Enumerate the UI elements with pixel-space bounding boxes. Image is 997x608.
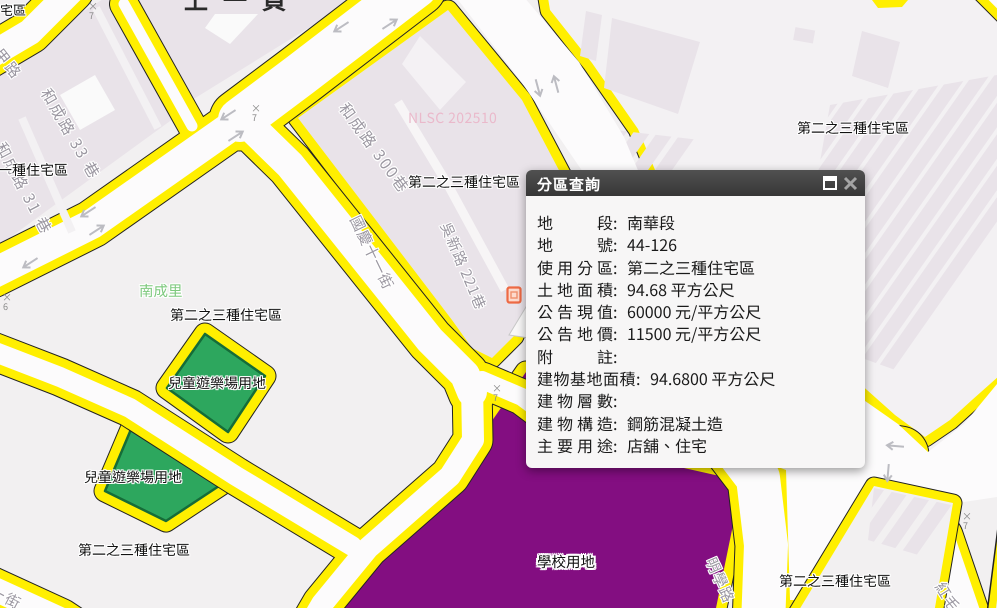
svg-text:7: 7 — [89, 9, 94, 22]
svg-text:7: 7 — [493, 391, 498, 404]
svg-text:7: 7 — [252, 111, 257, 124]
svg-text:6: 6 — [3, 300, 8, 313]
svg-text:7: 7 — [963, 519, 968, 532]
